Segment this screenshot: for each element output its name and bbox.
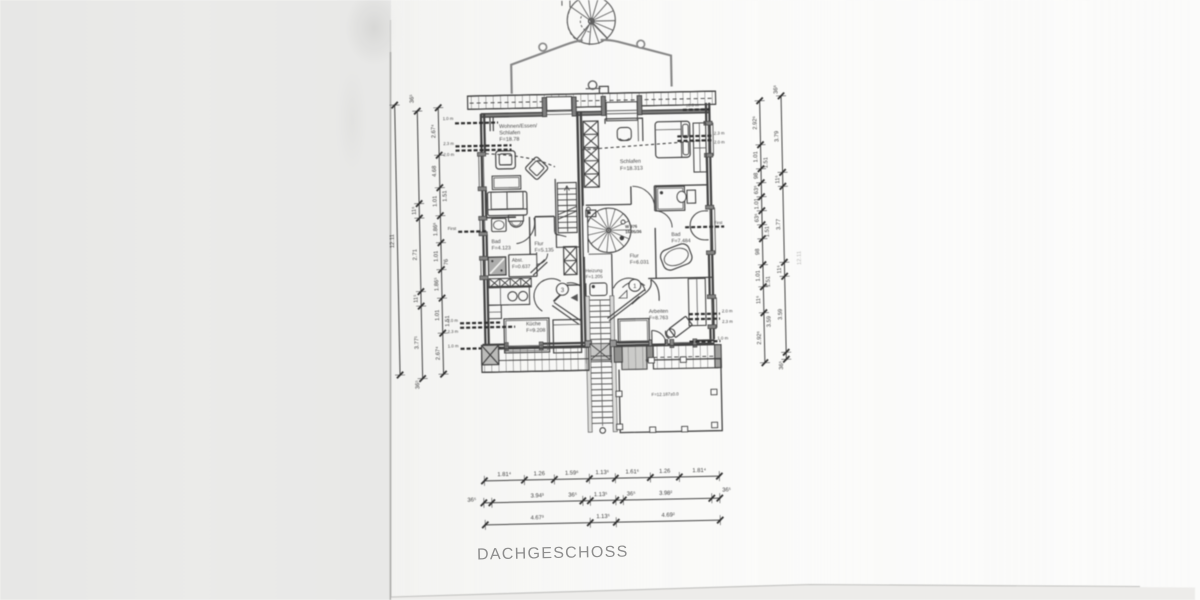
svg-text:3.77: 3.77	[776, 219, 782, 230]
svg-text:1.01: 1.01	[754, 198, 760, 209]
svg-text:1.81⁴: 1.81⁴	[497, 471, 511, 478]
svg-text:1.51: 1.51	[766, 276, 772, 287]
svg-text:11⁶: 11⁶	[755, 295, 762, 304]
svg-text:2.0 m: 2.0 m	[714, 139, 725, 144]
svg-text:2.3 m: 2.3 m	[447, 329, 458, 334]
svg-text:3.77¹: 3.77¹	[414, 336, 420, 349]
svg-text:1.61⁶: 1.61⁶	[625, 468, 639, 475]
svg-text:2.67⁴: 2.67⁴	[430, 124, 437, 138]
svg-text:1.01: 1.01	[756, 270, 762, 281]
svg-text:Schlafen: Schlafen	[499, 130, 520, 136]
svg-text:Bad: Bad	[491, 239, 500, 245]
svg-text:1.01: 1.01	[432, 196, 438, 207]
svg-text:2.67⁴: 2.67⁴	[434, 346, 441, 360]
svg-text:1.0 m: 1.0 m	[443, 116, 454, 121]
svg-text:F=9.208: F=9.208	[526, 328, 545, 334]
svg-text:98: 98	[755, 249, 761, 256]
svg-text:36⁵: 36⁵	[467, 497, 477, 504]
svg-text:1.01: 1.01	[435, 310, 441, 321]
svg-text:Küche: Küche	[526, 321, 541, 327]
svg-text:1.81⁴: 1.81⁴	[692, 467, 706, 474]
svg-text:Arbeiten: Arbeiten	[649, 309, 669, 315]
svg-text:F=1.205: F=1.205	[586, 274, 604, 279]
svg-text:11⁶: 11⁶	[776, 265, 783, 274]
svg-text:16.05/36: 16.05/36	[625, 229, 642, 234]
svg-text:3.59: 3.59	[778, 309, 784, 320]
svg-text:Flur: Flur	[630, 253, 639, 259]
svg-text:F=18.313: F=18.313	[620, 166, 643, 172]
svg-text:Wohnen/Essen/: Wohnen/Essen/	[499, 123, 538, 130]
svg-text:4.68: 4.68	[432, 166, 438, 177]
svg-text:Flur: Flur	[534, 241, 543, 247]
svg-text:First: First	[448, 226, 457, 231]
svg-text:2.3 m: 2.3 m	[714, 130, 725, 135]
svg-text:36⁵: 36⁵	[778, 360, 785, 370]
svg-text:F=6.031: F=6.031	[630, 260, 649, 266]
svg-text:4.67³: 4.67³	[531, 515, 544, 521]
svg-text:2.0 m: 2.0 m	[722, 308, 733, 313]
svg-text:First: First	[714, 220, 723, 225]
svg-text:Heizung: Heizung	[585, 268, 602, 273]
svg-text:1.13⁶: 1.13⁶	[595, 469, 609, 476]
svg-text:±0.0 m: ±0.0 m	[686, 102, 700, 107]
svg-text:36⁵: 36⁵	[627, 490, 637, 497]
svg-text:3.94³: 3.94³	[531, 493, 544, 499]
svg-text:2.71: 2.71	[413, 249, 419, 260]
svg-text:1.0 m: 1.0 m	[717, 335, 728, 340]
svg-text:1.51: 1.51	[445, 315, 451, 326]
svg-text:12.11: 12.11	[390, 234, 396, 248]
svg-text:2.3 m: 2.3 m	[443, 141, 454, 146]
svg-text:11⁶: 11⁶	[774, 175, 781, 184]
svg-text:36⁵: 36⁵	[722, 486, 732, 493]
svg-text:98: 98	[754, 173, 760, 180]
svg-text:1.51: 1.51	[763, 157, 769, 168]
svg-text:11⁵: 11⁵	[412, 294, 419, 303]
svg-text:1.13⁵: 1.13⁵	[596, 513, 610, 520]
svg-text:36⁵: 36⁵	[408, 94, 415, 104]
svg-text:36⁵: 36⁵	[568, 491, 578, 498]
svg-text:3.59: 3.59	[766, 316, 772, 327]
svg-text:1.51: 1.51	[765, 226, 771, 237]
svg-text:76: 76	[444, 259, 450, 266]
svg-text:1.01: 1.01	[434, 251, 440, 262]
svg-text:2.0 m: 2.0 m	[443, 152, 454, 157]
svg-text:F=18.78: F=18.78	[499, 137, 519, 143]
svg-text:F=7.484: F=7.484	[671, 238, 690, 244]
svg-text:F=4.123: F=4.123	[491, 245, 510, 251]
svg-text:Abst.: Abst.	[512, 258, 524, 264]
svg-text:1.01: 1.01	[753, 151, 759, 162]
svg-text:1.26: 1.26	[534, 471, 545, 477]
svg-text:1.51: 1.51	[442, 190, 448, 201]
svg-text:1.86⁵: 1.86⁵	[433, 277, 440, 291]
svg-text:1.26: 1.26	[659, 469, 670, 475]
svg-text:3.98²: 3.98²	[659, 491, 672, 497]
svg-text:Bad: Bad	[671, 232, 680, 238]
svg-text:1.13⁵: 1.13⁵	[594, 491, 608, 498]
svg-text:1.0 m: 1.0 m	[448, 343, 459, 348]
svg-text:2.92⁶: 2.92⁶	[751, 115, 758, 129]
svg-text:2.3 m: 2.3 m	[722, 319, 733, 324]
svg-text:36⁶: 36⁶	[772, 84, 779, 94]
svg-text:11⁶: 11⁶	[411, 206, 418, 215]
svg-text:2.92⁶: 2.92⁶	[756, 330, 763, 344]
svg-text:F=5.135: F=5.135	[535, 247, 554, 253]
svg-text:1.59⁶: 1.59⁶	[565, 469, 579, 476]
svg-text:1.86⁶: 1.86⁶	[432, 222, 439, 236]
svg-text:12.11: 12.11	[797, 251, 803, 265]
svg-text:63⁶: 63⁶	[753, 213, 760, 223]
svg-text:63⁶: 63⁶	[753, 185, 760, 195]
svg-text:36⁵: 36⁵	[414, 380, 421, 390]
svg-text:4.69²: 4.69²	[661, 513, 674, 519]
svg-text:F=8.763: F=8.763	[649, 315, 668, 321]
svg-text:Schlafen: Schlafen	[620, 159, 641, 165]
svg-text:3.79: 3.79	[774, 131, 780, 142]
svg-text:F=12.187±0.0: F=12.187±0.0	[651, 391, 679, 397]
svg-text:F=0.637: F=0.637	[512, 264, 531, 270]
